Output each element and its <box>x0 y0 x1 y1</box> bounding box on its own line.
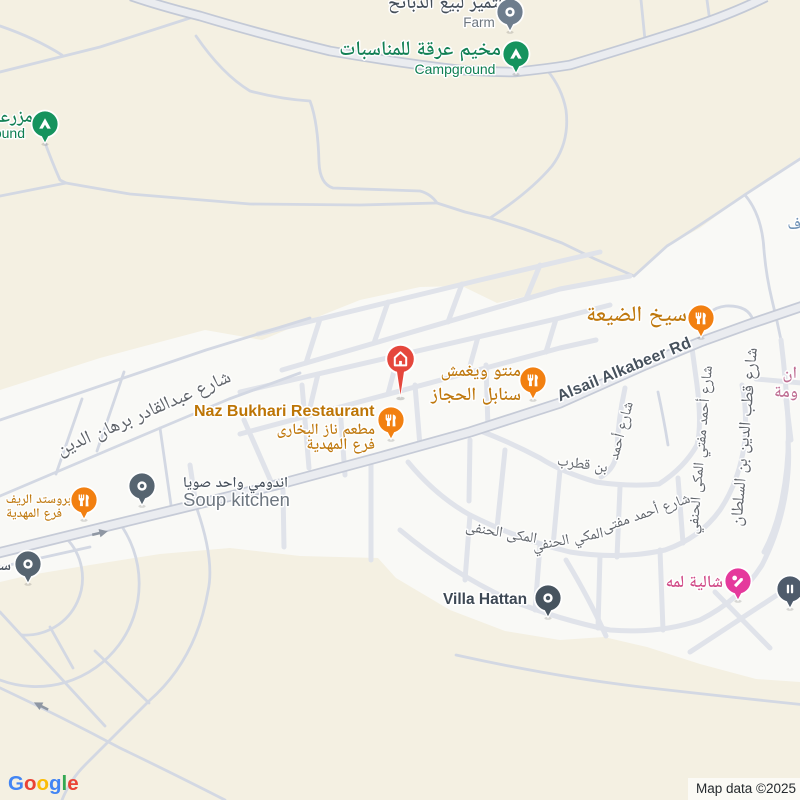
svg-text:Farm: Farm <box>463 15 495 30</box>
svg-text:Google: Google <box>8 772 79 795</box>
svg-text:Villa Hattan: Villa Hattan <box>443 591 527 608</box>
svg-text:Soup kitchen: Soup kitchen <box>183 489 290 510</box>
svg-text:Campground: Campground <box>415 61 496 77</box>
svg-text:Map data ©2025: Map data ©2025 <box>696 781 796 796</box>
svg-text:Naz Bukhari Restaurant: Naz Bukhari Restaurant <box>194 403 375 420</box>
svg-text:Campground: Campground <box>0 125 25 141</box>
